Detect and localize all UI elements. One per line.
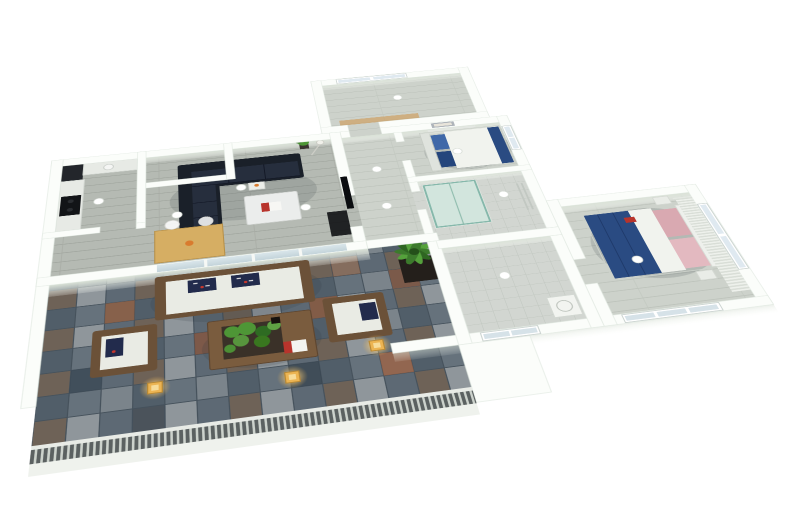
fridge-unit [61, 164, 84, 182]
wall [340, 131, 350, 138]
wall [136, 222, 145, 229]
floorplan-svg [0, 41, 800, 526]
navy-pillow [105, 337, 123, 357]
floor-light-core [151, 385, 158, 391]
cooktop [59, 195, 81, 217]
floor-light-core [373, 342, 381, 348]
plan-perspective-wrapper [0, 41, 800, 526]
wall [136, 151, 146, 223]
mullion [204, 259, 208, 266]
rust-tile [105, 300, 135, 323]
floor-light-core [289, 374, 297, 380]
magazine-cover [261, 203, 270, 212]
magazine-cover [283, 341, 293, 354]
floorplan-3d-render: { "scene": { "type": "3d-isometric-floor… [0, 0, 800, 526]
black-cup [271, 317, 281, 324]
